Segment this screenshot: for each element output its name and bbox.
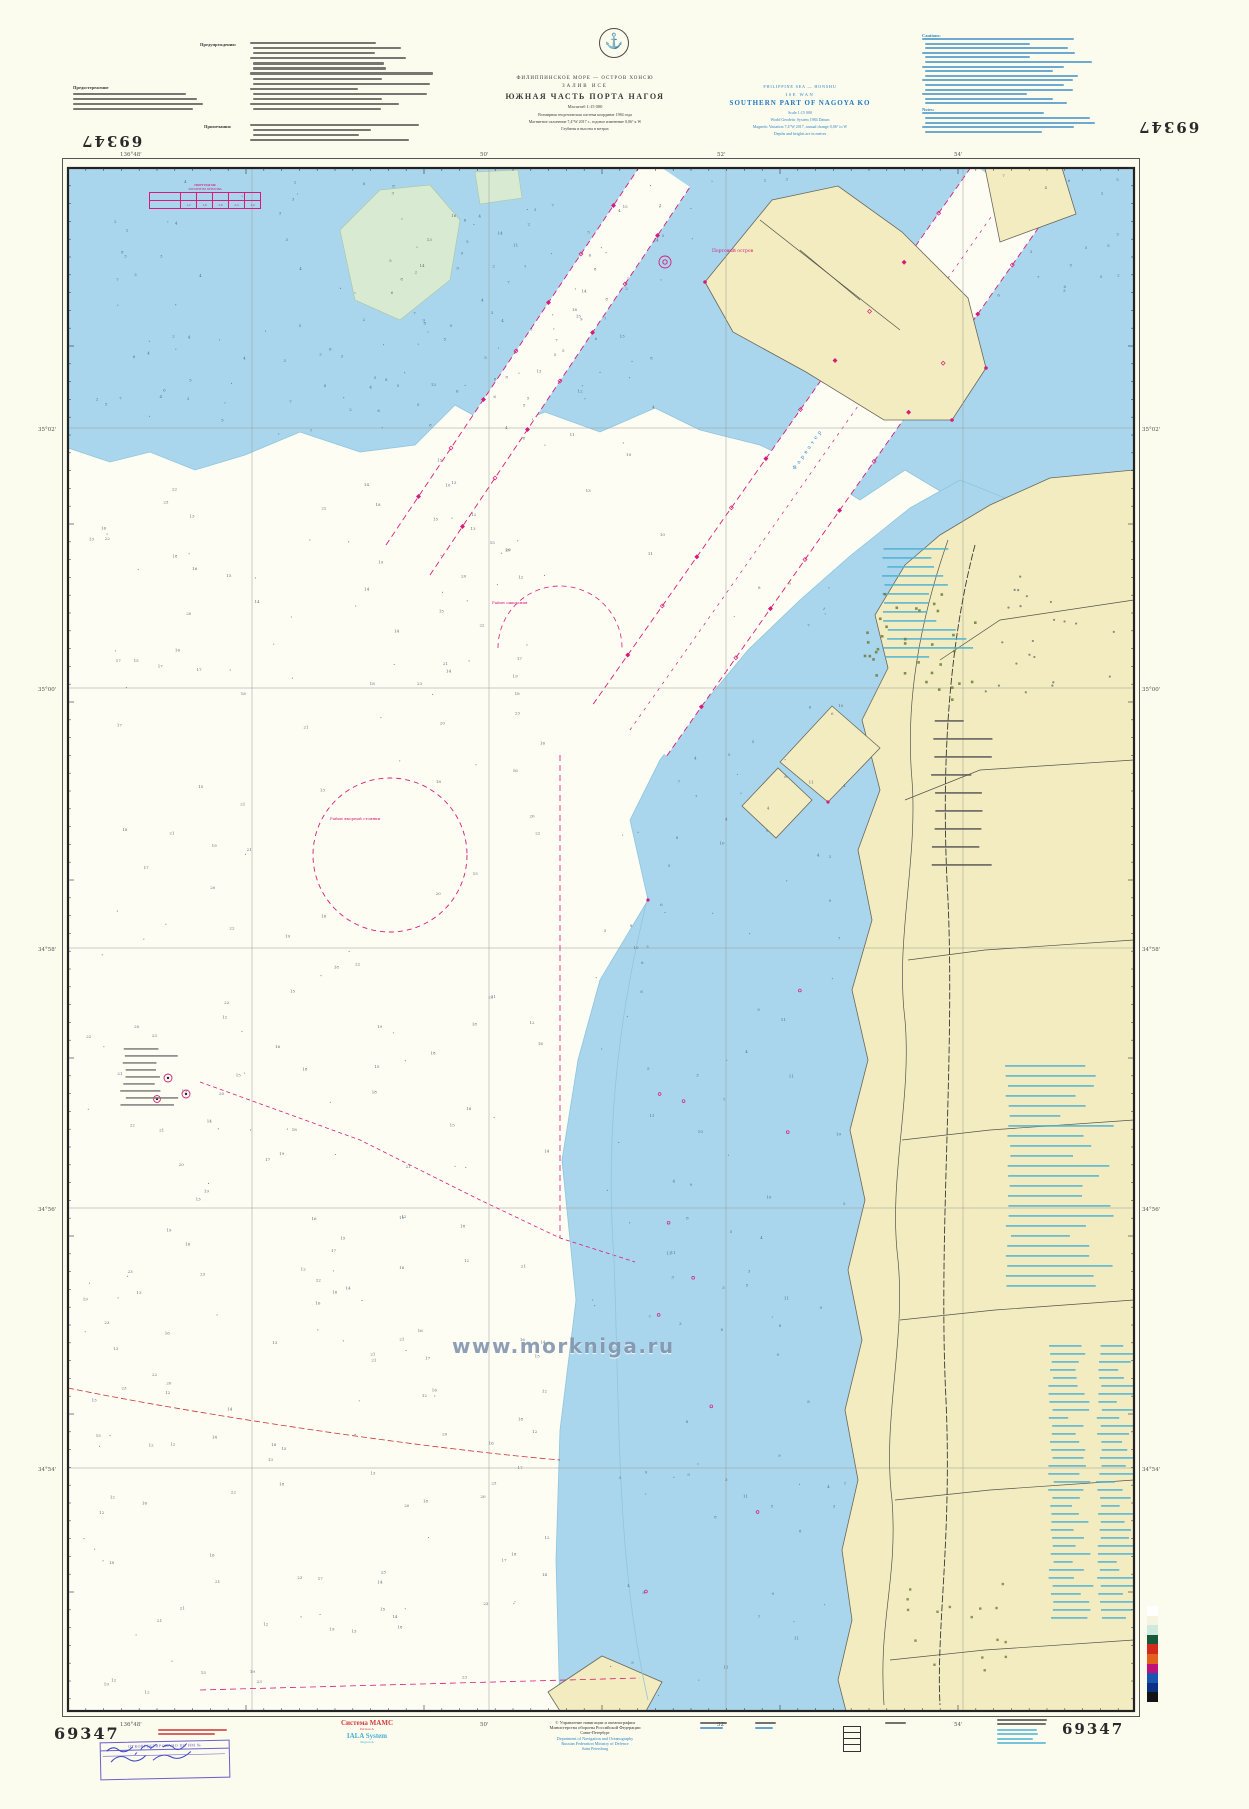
svg-text:12: 12 bbox=[471, 512, 477, 517]
svg-text:4: 4 bbox=[505, 425, 508, 430]
svg-text:8: 8 bbox=[385, 377, 388, 382]
svg-text:2: 2 bbox=[1117, 272, 1120, 277]
svg-text:3: 3 bbox=[671, 1274, 674, 1279]
svg-text:2: 2 bbox=[114, 219, 117, 224]
svg-text:4: 4 bbox=[147, 350, 150, 355]
svg-text:17: 17 bbox=[158, 663, 164, 668]
lon-label: 54' bbox=[954, 152, 963, 158]
svg-text:2: 2 bbox=[126, 228, 129, 233]
svg-text:7: 7 bbox=[695, 794, 698, 799]
svg-text:3: 3 bbox=[187, 396, 190, 401]
svg-text:12: 12 bbox=[263, 1621, 269, 1626]
title-en-scale: Scale 1:15 000 bbox=[690, 110, 910, 115]
svg-text:18: 18 bbox=[466, 1106, 472, 1111]
svg-text:3: 3 bbox=[283, 358, 286, 363]
svg-text:16: 16 bbox=[315, 1301, 321, 1306]
svg-text:14: 14 bbox=[497, 230, 503, 235]
svg-text:11: 11 bbox=[743, 1494, 748, 1499]
svg-text:16: 16 bbox=[538, 1041, 544, 1046]
svg-text:4: 4 bbox=[188, 334, 191, 339]
anchor-emblem-icon: ⚓ bbox=[599, 28, 629, 58]
lat-label: 35°00' bbox=[38, 687, 56, 693]
svg-text:17: 17 bbox=[331, 1248, 337, 1253]
svg-text:18: 18 bbox=[302, 1067, 308, 1072]
svg-text:9: 9 bbox=[450, 323, 453, 328]
svg-text:13: 13 bbox=[351, 1628, 357, 1633]
lat-label: 34°58' bbox=[1142, 947, 1160, 953]
chart-number-bottom-right: 69347 bbox=[1062, 1720, 1124, 1738]
svg-text:21: 21 bbox=[169, 831, 174, 836]
svg-text:5: 5 bbox=[299, 323, 302, 328]
svg-text:17: 17 bbox=[517, 656, 523, 661]
svg-text:5: 5 bbox=[523, 403, 526, 408]
svg-text:18: 18 bbox=[370, 681, 376, 686]
svg-text:13: 13 bbox=[89, 537, 95, 542]
svg-text:13: 13 bbox=[92, 1397, 98, 1402]
svg-text:7: 7 bbox=[555, 338, 558, 343]
svg-text:13: 13 bbox=[272, 1340, 278, 1345]
svg-text:13: 13 bbox=[451, 480, 457, 485]
chart-number-top-left: 69347 bbox=[80, 132, 142, 150]
svg-text:2: 2 bbox=[172, 334, 175, 339]
svg-text:16: 16 bbox=[312, 1216, 318, 1221]
svg-text:23: 23 bbox=[104, 1320, 110, 1325]
svg-text:4: 4 bbox=[175, 220, 178, 225]
svg-text:15: 15 bbox=[380, 1606, 386, 1611]
svg-text:22: 22 bbox=[229, 925, 235, 930]
svg-text:8: 8 bbox=[779, 1323, 782, 1328]
svg-text:2: 2 bbox=[527, 222, 530, 227]
svg-text:13: 13 bbox=[620, 333, 626, 338]
svg-text:13: 13 bbox=[189, 513, 195, 518]
svg-text:4: 4 bbox=[760, 1235, 763, 1240]
svg-text:8: 8 bbox=[686, 1419, 689, 1424]
svg-text:6: 6 bbox=[391, 290, 394, 295]
svg-text:21: 21 bbox=[488, 994, 493, 999]
svg-text:15: 15 bbox=[236, 1072, 242, 1077]
iala-en-label: IALA System bbox=[312, 1732, 422, 1740]
svg-text:6: 6 bbox=[784, 774, 787, 779]
svg-text:5: 5 bbox=[730, 1229, 733, 1234]
correction-note-simulated-text bbox=[158, 1729, 227, 1738]
svg-text:4: 4 bbox=[767, 805, 770, 810]
svg-text:10: 10 bbox=[698, 1129, 704, 1134]
lat-label: 34°54' bbox=[1142, 1467, 1160, 1473]
svg-text:10: 10 bbox=[445, 482, 451, 487]
svg-text:23: 23 bbox=[122, 1386, 128, 1391]
svg-text:23: 23 bbox=[462, 1675, 468, 1680]
iala-en-sub: Region A bbox=[312, 1740, 422, 1744]
svg-text:5: 5 bbox=[221, 418, 224, 423]
svg-text:5: 5 bbox=[397, 383, 400, 388]
svg-text:22: 22 bbox=[316, 1278, 322, 1283]
colorbar-swatch-8 bbox=[1147, 1683, 1158, 1693]
svg-text:17: 17 bbox=[501, 1557, 507, 1562]
svg-text:14: 14 bbox=[212, 1434, 218, 1439]
svg-text:6: 6 bbox=[163, 387, 166, 392]
svg-text:6: 6 bbox=[589, 252, 592, 257]
svg-text:16: 16 bbox=[321, 914, 327, 919]
svg-text:15: 15 bbox=[473, 871, 479, 876]
svg-text:16: 16 bbox=[192, 566, 198, 571]
lat-label: 34°54' bbox=[38, 1467, 56, 1473]
svg-text:12: 12 bbox=[165, 1390, 171, 1395]
svg-text:3: 3 bbox=[341, 354, 344, 359]
svg-text:3: 3 bbox=[833, 1503, 836, 1508]
svg-text:5: 5 bbox=[1069, 262, 1072, 267]
svg-text:11: 11 bbox=[648, 551, 653, 556]
svg-text:17: 17 bbox=[518, 1465, 524, 1470]
lon-label: 54' bbox=[954, 1722, 963, 1728]
lat-label: 34°56' bbox=[1142, 1207, 1160, 1213]
svg-text:14: 14 bbox=[377, 1579, 383, 1584]
svg-text:19: 19 bbox=[212, 843, 218, 848]
svg-text:3: 3 bbox=[1030, 249, 1033, 254]
svg-text:21: 21 bbox=[117, 1071, 122, 1076]
svg-text:21: 21 bbox=[240, 802, 245, 807]
svg-text:4: 4 bbox=[199, 273, 202, 278]
svg-text:9: 9 bbox=[778, 1453, 781, 1458]
svg-text:5: 5 bbox=[647, 1066, 650, 1071]
svg-text:5: 5 bbox=[668, 863, 671, 868]
print-date-pair-1 bbox=[700, 1722, 727, 1731]
svg-text:12: 12 bbox=[529, 1020, 535, 1025]
svg-text:9: 9 bbox=[819, 1305, 822, 1310]
cautions-en-block: Cautions: Notes: bbox=[922, 33, 1112, 135]
svg-text:4: 4 bbox=[827, 1484, 830, 1489]
svg-text:5: 5 bbox=[444, 336, 447, 341]
svg-text:15: 15 bbox=[450, 1122, 456, 1127]
svg-text:13: 13 bbox=[136, 1290, 142, 1295]
svg-text:14: 14 bbox=[544, 1148, 550, 1153]
svg-text:4: 4 bbox=[501, 318, 504, 323]
svg-text:21: 21 bbox=[215, 1579, 220, 1584]
colorbar-swatch-9 bbox=[1147, 1692, 1158, 1702]
title-ru-sea: ФИЛИППИНСКОЕ МОРЕ — ОСТРОВ ХОНСЮ bbox=[435, 76, 735, 81]
svg-text:19: 19 bbox=[250, 1669, 256, 1674]
svg-text:17: 17 bbox=[318, 1576, 324, 1581]
svg-text:3: 3 bbox=[722, 1285, 725, 1290]
svg-text:5: 5 bbox=[417, 402, 420, 407]
svg-text:23: 23 bbox=[381, 1569, 387, 1574]
svg-text:18: 18 bbox=[518, 1416, 524, 1421]
svg-text:5: 5 bbox=[105, 401, 108, 406]
tide-table-grid: 1,2 1,6 2,0 2,4 1,4 bbox=[149, 192, 261, 209]
svg-text:3: 3 bbox=[619, 1475, 622, 1480]
svg-text:2: 2 bbox=[294, 180, 297, 185]
svg-text:16: 16 bbox=[572, 307, 578, 312]
svg-text:20: 20 bbox=[210, 885, 216, 890]
cautions-en-simulated-text bbox=[922, 38, 1112, 104]
svg-text:6: 6 bbox=[831, 711, 834, 716]
iala-block: Система МАМС Регион А IALA System Region… bbox=[312, 1719, 422, 1744]
imprint-en-line3: Saint Petersburg bbox=[470, 1746, 720, 1751]
svg-text:7: 7 bbox=[678, 779, 681, 784]
svg-text:18: 18 bbox=[271, 1442, 277, 1447]
svg-text:9: 9 bbox=[422, 317, 425, 322]
svg-text:8: 8 bbox=[494, 377, 497, 382]
svg-text:9: 9 bbox=[828, 898, 831, 903]
svg-text:5: 5 bbox=[752, 739, 755, 744]
svg-text:11: 11 bbox=[789, 1074, 794, 1079]
svg-text:23: 23 bbox=[297, 1575, 303, 1580]
svg-text:21: 21 bbox=[159, 1127, 164, 1132]
svg-text:12: 12 bbox=[542, 1389, 548, 1394]
svg-text:22: 22 bbox=[172, 487, 178, 492]
svg-text:14: 14 bbox=[392, 1614, 398, 1619]
svg-text:2: 2 bbox=[764, 177, 767, 182]
lon-label: 136°48' bbox=[120, 152, 142, 158]
svg-text:20: 20 bbox=[529, 813, 535, 818]
notes-en-simulated-text bbox=[922, 112, 1112, 132]
svg-text:18: 18 bbox=[334, 965, 340, 970]
svg-text:4: 4 bbox=[299, 266, 302, 271]
svg-text:5: 5 bbox=[1085, 245, 1088, 250]
svg-text:4: 4 bbox=[817, 852, 820, 857]
svg-text:17: 17 bbox=[116, 658, 122, 663]
svg-text:4: 4 bbox=[618, 208, 621, 213]
svg-text:13: 13 bbox=[427, 237, 433, 242]
svg-text:3: 3 bbox=[785, 177, 788, 182]
svg-text:12: 12 bbox=[422, 1393, 428, 1398]
svg-text:8: 8 bbox=[324, 383, 327, 388]
svg-text:13: 13 bbox=[586, 488, 592, 493]
svg-text:2: 2 bbox=[492, 263, 495, 268]
svg-text:23: 23 bbox=[257, 1679, 263, 1684]
svg-text:19: 19 bbox=[279, 1151, 285, 1156]
svg-text:14: 14 bbox=[255, 599, 261, 604]
svg-text:11: 11 bbox=[794, 1635, 799, 1640]
svg-text:4: 4 bbox=[481, 298, 484, 303]
svg-text:12: 12 bbox=[170, 1442, 176, 1447]
svg-text:18: 18 bbox=[292, 1127, 298, 1132]
svg-text:22: 22 bbox=[224, 1000, 230, 1005]
svg-text:19: 19 bbox=[182, 1088, 188, 1093]
tide-value: 1,2 bbox=[181, 201, 197, 209]
svg-text:17: 17 bbox=[265, 1157, 271, 1162]
right-imprint-blue bbox=[997, 1729, 1046, 1747]
svg-text:2: 2 bbox=[96, 397, 99, 402]
svg-text:3: 3 bbox=[160, 253, 163, 258]
svg-text:14: 14 bbox=[364, 482, 370, 487]
svg-text:16: 16 bbox=[142, 1500, 148, 1505]
svg-text:15: 15 bbox=[201, 1670, 207, 1675]
svg-text:8: 8 bbox=[630, 923, 633, 928]
svg-text:15: 15 bbox=[134, 658, 140, 663]
svg-text:13: 13 bbox=[113, 1346, 119, 1351]
svg-text:13: 13 bbox=[268, 1457, 274, 1462]
svg-text:11: 11 bbox=[649, 1113, 654, 1118]
svg-text:12: 12 bbox=[464, 1258, 470, 1263]
lon-label: 52' bbox=[717, 152, 726, 158]
svg-text:18: 18 bbox=[241, 691, 247, 696]
svg-text:3: 3 bbox=[604, 928, 607, 933]
svg-text:3: 3 bbox=[646, 944, 649, 949]
svg-text:13: 13 bbox=[320, 788, 326, 793]
svg-text:21: 21 bbox=[303, 725, 308, 730]
svg-text:20: 20 bbox=[461, 573, 467, 578]
svg-text:4: 4 bbox=[1044, 185, 1047, 190]
svg-text:13: 13 bbox=[431, 382, 437, 387]
svg-text:16: 16 bbox=[540, 740, 546, 745]
iala-ru-label: Система МАМС bbox=[312, 1719, 422, 1727]
svg-text:13: 13 bbox=[471, 526, 477, 531]
svg-text:18: 18 bbox=[375, 502, 381, 507]
svg-text:10: 10 bbox=[660, 532, 666, 537]
svg-text:4: 4 bbox=[627, 1583, 630, 1588]
edition-number-simulated bbox=[885, 1722, 906, 1726]
green-shoal-small bbox=[475, 170, 522, 204]
svg-text:22: 22 bbox=[130, 1122, 136, 1127]
svg-text:16: 16 bbox=[185, 1241, 191, 1246]
svg-text:14: 14 bbox=[207, 1118, 213, 1123]
svg-text:7: 7 bbox=[604, 316, 607, 321]
colorbar-swatch-7 bbox=[1147, 1673, 1158, 1683]
colorbar-swatch-4 bbox=[1147, 1644, 1158, 1654]
svg-text:8: 8 bbox=[640, 989, 643, 994]
svg-text:20: 20 bbox=[442, 1432, 448, 1437]
svg-text:14: 14 bbox=[542, 1572, 548, 1577]
svg-text:5: 5 bbox=[1100, 274, 1103, 279]
svg-text:5: 5 bbox=[484, 355, 487, 360]
svg-text:14: 14 bbox=[364, 586, 370, 591]
svg-text:2: 2 bbox=[363, 317, 366, 322]
svg-text:6: 6 bbox=[464, 217, 467, 222]
svg-text:6: 6 bbox=[660, 902, 663, 907]
svg-text:6: 6 bbox=[1064, 284, 1067, 289]
svg-text:2: 2 bbox=[1101, 191, 1104, 196]
svg-text:22: 22 bbox=[86, 1034, 92, 1039]
title-en-bay: ISE WAN bbox=[690, 92, 910, 97]
svg-text:18: 18 bbox=[172, 553, 178, 558]
svg-text:10: 10 bbox=[836, 1131, 842, 1136]
svg-text:10: 10 bbox=[838, 703, 844, 708]
svg-text:2: 2 bbox=[319, 352, 322, 357]
svg-text:14: 14 bbox=[446, 668, 452, 673]
svg-text:16: 16 bbox=[175, 647, 181, 652]
colorbar-swatch-0 bbox=[1147, 1606, 1158, 1616]
svg-text:16: 16 bbox=[432, 1388, 438, 1393]
svg-text:14: 14 bbox=[345, 1285, 351, 1290]
svg-text:11: 11 bbox=[513, 242, 518, 247]
svg-text:6: 6 bbox=[133, 354, 136, 359]
svg-text:6: 6 bbox=[329, 347, 332, 352]
title-block-en: PHILIPPINE SEA — HONSHU ISE WAN SOUTHERN… bbox=[690, 84, 910, 136]
svg-text:12: 12 bbox=[110, 1494, 116, 1499]
registration-mark bbox=[843, 1726, 861, 1752]
svg-text:8: 8 bbox=[676, 835, 679, 840]
lon-label: 136°48' bbox=[120, 1722, 142, 1728]
svg-text:19: 19 bbox=[329, 1626, 335, 1631]
svg-text:18: 18 bbox=[423, 1499, 429, 1504]
svg-text:2: 2 bbox=[415, 269, 418, 274]
imprint-block: © Управление навигации и океанографии Ми… bbox=[470, 1720, 720, 1751]
chart-map: 1613131217162318231521171822191812221815… bbox=[68, 157, 1138, 1711]
warnings-ru-heading: Предупреждения: bbox=[200, 42, 236, 47]
svg-text:21: 21 bbox=[406, 1164, 411, 1169]
svg-text:21: 21 bbox=[443, 661, 448, 666]
svg-text:6: 6 bbox=[363, 181, 366, 186]
svg-text:22: 22 bbox=[355, 962, 361, 967]
svg-text:18: 18 bbox=[436, 779, 442, 784]
svg-text:19: 19 bbox=[166, 1228, 172, 1233]
svg-text:17: 17 bbox=[425, 1356, 431, 1361]
svg-text:16: 16 bbox=[209, 1552, 215, 1557]
svg-text:7: 7 bbox=[1002, 173, 1005, 178]
svg-text:18: 18 bbox=[397, 1624, 403, 1629]
svg-text:7: 7 bbox=[507, 280, 510, 285]
svg-text:13: 13 bbox=[370, 1471, 376, 1476]
svg-text:11: 11 bbox=[781, 1017, 786, 1022]
svg-text:18: 18 bbox=[109, 1560, 115, 1565]
anchorage-label: Район якорной стоянки bbox=[330, 816, 381, 821]
print-date-pair-2 bbox=[755, 1722, 776, 1731]
chart-number-bottom-left: 69347 bbox=[54, 1724, 120, 1743]
svg-text:23: 23 bbox=[163, 500, 169, 505]
svg-text:18: 18 bbox=[122, 827, 128, 832]
iala-ru-sub: Регион А bbox=[312, 1727, 422, 1731]
notes-ru-heading: Примечания: bbox=[204, 124, 231, 129]
svg-text:18: 18 bbox=[372, 1089, 378, 1094]
svg-text:16: 16 bbox=[451, 213, 457, 218]
svg-text:15: 15 bbox=[439, 609, 445, 614]
colorbar-swatch-5 bbox=[1147, 1654, 1158, 1664]
svg-text:10: 10 bbox=[633, 945, 639, 950]
svg-text:20: 20 bbox=[404, 1503, 410, 1508]
svg-text:10: 10 bbox=[766, 1194, 772, 1199]
svg-text:22: 22 bbox=[231, 1490, 237, 1495]
svg-text:22: 22 bbox=[105, 536, 111, 541]
chart-number-top-right: 69347 bbox=[1137, 118, 1199, 136]
svg-text:14: 14 bbox=[420, 263, 426, 268]
svg-text:21: 21 bbox=[371, 1357, 376, 1362]
svg-text:3: 3 bbox=[1116, 232, 1119, 237]
svg-text:19: 19 bbox=[83, 1296, 89, 1301]
svg-text:13: 13 bbox=[536, 368, 542, 373]
svg-text:14: 14 bbox=[581, 288, 587, 293]
svg-text:12: 12 bbox=[518, 575, 524, 580]
svg-text:21: 21 bbox=[370, 1352, 375, 1357]
svg-text:20: 20 bbox=[134, 1024, 140, 1029]
svg-text:8: 8 bbox=[650, 355, 653, 360]
watermark: www.morkniga.ru bbox=[452, 1334, 675, 1358]
stamp-handwriting bbox=[101, 1741, 228, 1770]
svg-text:4: 4 bbox=[652, 405, 655, 410]
svg-text:12: 12 bbox=[99, 1510, 105, 1515]
svg-text:7: 7 bbox=[116, 277, 119, 282]
svg-text:20: 20 bbox=[480, 1494, 486, 1499]
svg-text:14: 14 bbox=[227, 1406, 233, 1411]
title-en-main: SOUTHERN PART OF NAGOYA KO bbox=[690, 99, 910, 107]
svg-text:15: 15 bbox=[226, 573, 232, 578]
svg-text:22: 22 bbox=[479, 622, 485, 627]
svg-text:19: 19 bbox=[285, 933, 291, 938]
svg-text:6: 6 bbox=[595, 336, 598, 341]
colorbar-swatch-6 bbox=[1147, 1664, 1158, 1674]
svg-text:16: 16 bbox=[101, 525, 107, 530]
svg-text:8: 8 bbox=[429, 423, 432, 428]
svg-text:7: 7 bbox=[310, 428, 313, 433]
svg-text:18: 18 bbox=[279, 1481, 285, 1486]
correction-stamp: ОТКОРРЕКТИРОВАНО ПО ИМ № bbox=[100, 1740, 231, 1781]
svg-text:20: 20 bbox=[166, 1381, 172, 1386]
svg-text:7: 7 bbox=[838, 935, 841, 940]
svg-text:12: 12 bbox=[544, 1535, 550, 1540]
svg-text:16: 16 bbox=[332, 1290, 338, 1295]
title-en-units: Depths and heights are in metres bbox=[690, 131, 910, 136]
lat-label: 34°56' bbox=[38, 1207, 56, 1213]
svg-text:4: 4 bbox=[369, 385, 372, 390]
